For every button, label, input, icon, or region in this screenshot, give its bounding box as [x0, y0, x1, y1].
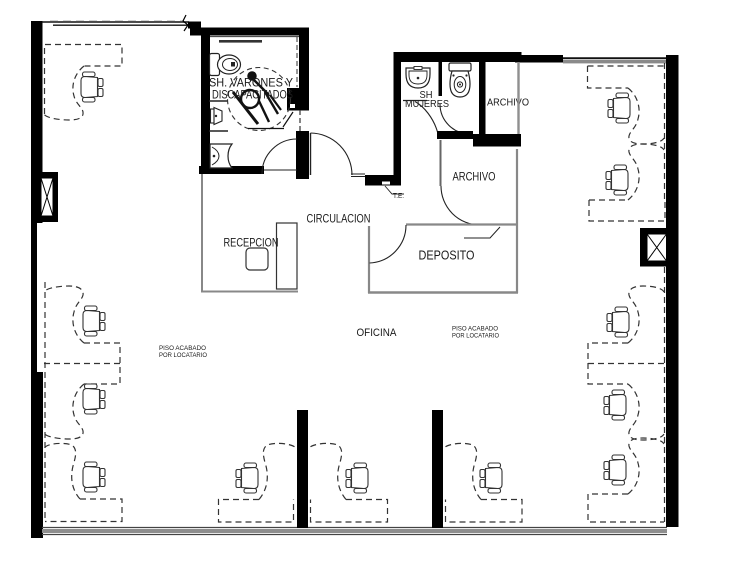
svg-text:DISCAPACITADOS: DISCAPACITADOS	[212, 88, 293, 102]
svg-text:MUJERES: MUJERES	[405, 98, 449, 110]
svg-text:PISO ACABADO: PISO ACABADO	[452, 326, 498, 333]
svg-text:RECEPCION: RECEPCION	[224, 236, 279, 250]
svg-text:POR LOCATARIO: POR LOCATARIO	[452, 333, 499, 340]
svg-text:CIRCULACION: CIRCULACION	[307, 212, 371, 226]
svg-text:ARCHIVO: ARCHIVO	[487, 97, 529, 109]
svg-text:POR LOCATARIO: POR LOCATARIO	[159, 352, 207, 359]
svg-text:PISO ACABADO: PISO ACABADO	[159, 345, 206, 352]
svg-text:DEPOSITO: DEPOSITO	[419, 248, 475, 263]
svg-text:ARCHIVO: ARCHIVO	[453, 170, 496, 184]
svg-text:T.E.: T.E.	[393, 193, 404, 200]
svg-text:OFICINA: OFICINA	[357, 327, 398, 339]
